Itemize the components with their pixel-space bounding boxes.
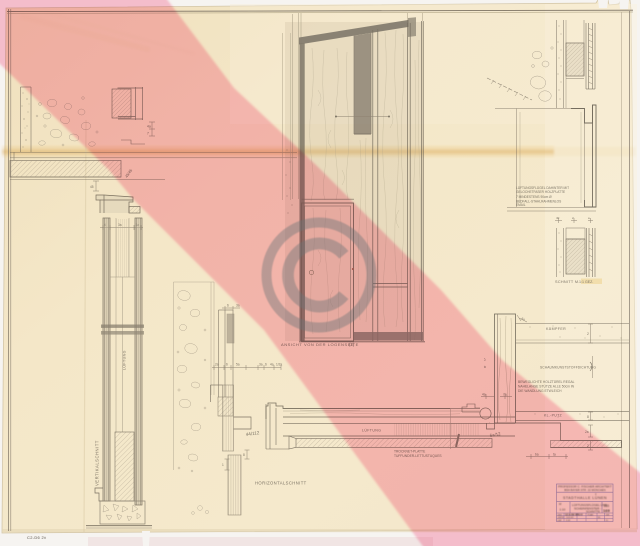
svg-text:2: 2 [587,332,589,336]
svg-text:HORIZONTALSCHNITT: HORIZONTALSCHNITT [255,481,307,486]
svg-text:C2-D6 2x: C2-D6 2x [27,535,46,540]
svg-text:EMAIL: EMAIL [516,203,526,207]
svg-text:2a: 2a [215,363,219,367]
svg-text:8: 8 [243,453,245,457]
svg-text:6: 6 [265,363,267,367]
svg-text:GELOCHETFASER HOLZPLATTE: GELOCHETFASER HOLZPLATTE [516,190,565,194]
svg-text:1/2a: 1/2a [276,363,282,367]
svg-text:7 MINDESTENS 90cm Ø: 7 MINDESTENS 90cm Ø [516,195,552,199]
svg-text:3a: 3a [259,363,263,367]
svg-text:KÄMPFER: KÄMPFER [546,327,566,331]
svg-text:SCHNITT M.: SCHNITT M. [555,280,580,284]
svg-text:VERTIKALSCHNITT: VERTIKALSCHNITT [95,440,100,486]
svg-text:1:1 GEZ.: 1:1 GEZ. [579,280,593,284]
svg-text:1: 1 [222,463,224,467]
svg-text:40: 40 [556,216,560,220]
svg-text:5a: 5a [236,363,240,367]
svg-text:8: 8 [587,415,589,419]
svg-text:LÜFTUNG: LÜFTUNG [123,350,127,370]
svg-text:45: 45 [90,185,94,189]
svg-text:6: 6 [227,304,229,308]
svg-text:SCHAUMKUNSTSTOFFDICHTUNG: SCHAUMKUNSTSTOFFDICHTUNG [540,366,596,370]
svg-text:4a: 4a [270,363,274,367]
svg-text:6: 6 [226,363,228,367]
